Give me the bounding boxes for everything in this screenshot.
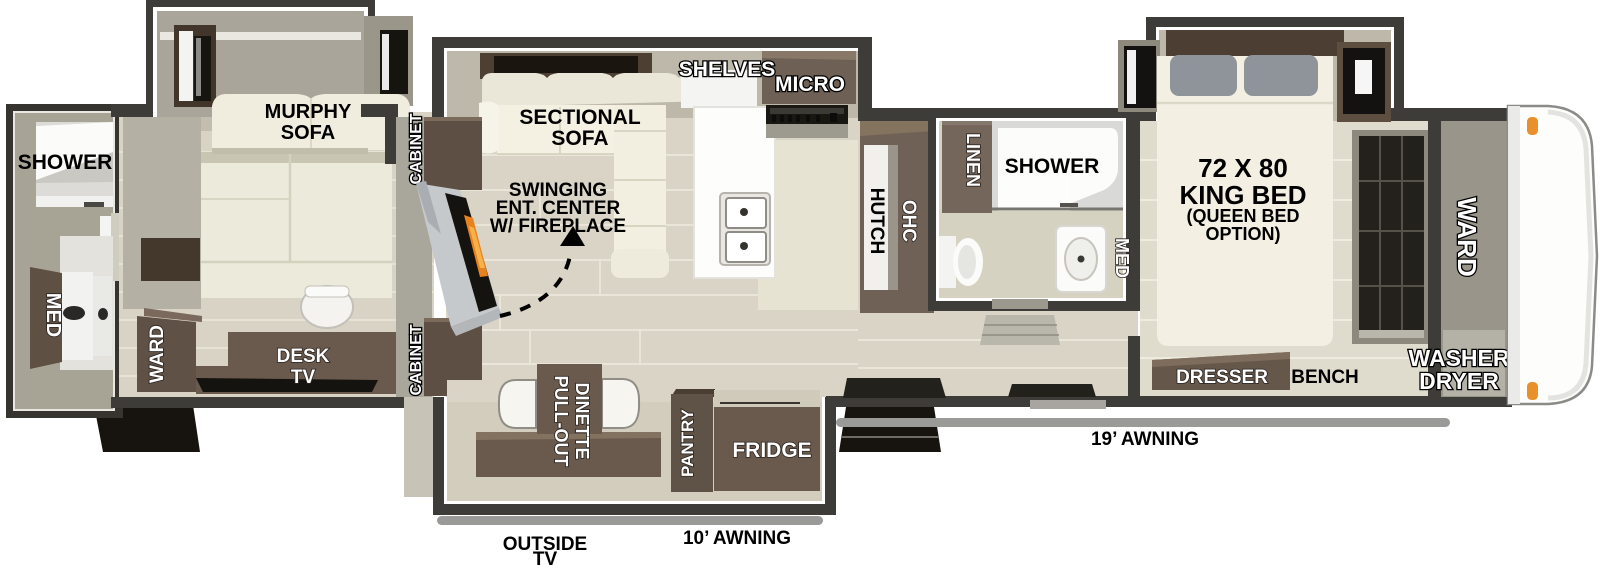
svg-text:OPTION): OPTION) (1206, 224, 1281, 244)
svg-text:72 X 80: 72 X 80 (1198, 153, 1288, 183)
svg-text:HUTCH: HUTCH (866, 188, 887, 255)
svg-text:SHOWER: SHOWER (18, 151, 113, 174)
svg-text:WARD: WARD (1452, 197, 1482, 276)
svg-text:PULL-OUT: PULL-OUT (551, 376, 571, 467)
svg-text:SOFA: SOFA (551, 127, 608, 150)
svg-text:(QUEEN BED: (QUEEN BED (1186, 206, 1299, 226)
svg-text:MURPHY: MURPHY (265, 101, 352, 123)
svg-text:TV: TV (291, 367, 316, 388)
svg-text:PANTRY: PANTRY (678, 408, 697, 477)
svg-text:TV: TV (533, 549, 558, 565)
svg-text:CABINET: CABINET (408, 324, 425, 395)
svg-text:SECTIONAL: SECTIONAL (519, 106, 641, 129)
svg-text:CABINET: CABINET (408, 113, 425, 184)
svg-text:MED: MED (1112, 238, 1132, 278)
svg-text:19’ AWNING: 19’ AWNING (1091, 429, 1199, 450)
svg-text:DRYER: DRYER (1419, 368, 1499, 394)
svg-text:FRIDGE: FRIDGE (732, 439, 811, 462)
svg-text:MICRO: MICRO (775, 73, 845, 96)
svg-text:OHC: OHC (898, 200, 919, 243)
svg-text:LINEN: LINEN (963, 133, 983, 187)
svg-text:MED: MED (42, 293, 64, 337)
svg-text:SHELVES: SHELVES (679, 58, 775, 81)
svg-text:SHOWER: SHOWER (1005, 155, 1100, 178)
svg-text:BENCH: BENCH (1291, 367, 1359, 388)
svg-text:DRESSER: DRESSER (1176, 367, 1268, 388)
svg-text:SOFA: SOFA (281, 122, 335, 144)
svg-text:W/ FIREPLACE: W/ FIREPLACE (490, 216, 626, 237)
svg-text:DINETTE: DINETTE (572, 382, 592, 459)
svg-text:10’ AWNING: 10’ AWNING (683, 528, 791, 549)
svg-text:WARD: WARD (147, 325, 168, 383)
svg-text:DESK: DESK (277, 346, 330, 367)
